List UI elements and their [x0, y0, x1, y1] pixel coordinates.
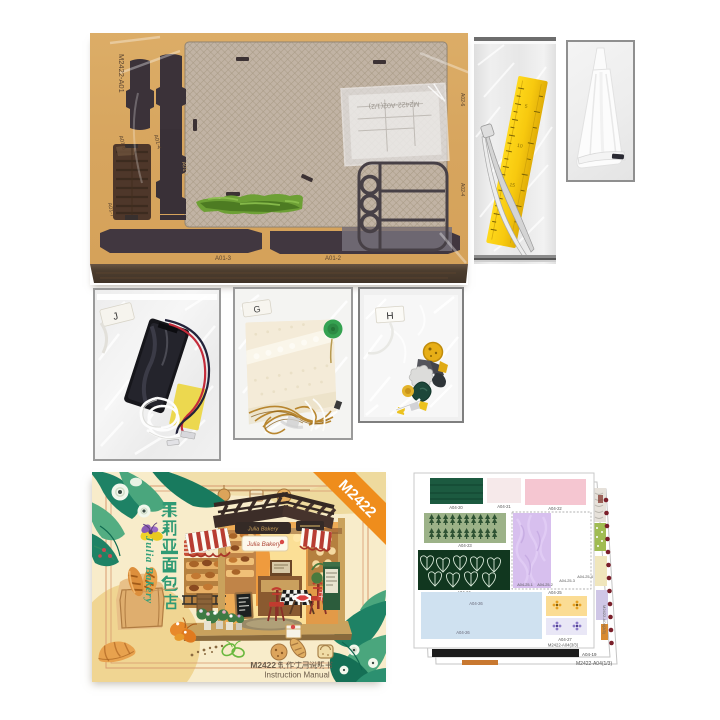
svg-text:A02-4: A02-4: [459, 183, 465, 197]
svg-text:A04-25-2: A04-25-2: [537, 583, 553, 587]
svg-text:A04-25-4: A04-25-4: [577, 575, 593, 579]
svg-text:A04-26: A04-26: [456, 630, 470, 635]
svg-text:A04-22: A04-22: [548, 506, 562, 511]
svg-text:A04-26: A04-26: [469, 601, 483, 606]
svg-text:M2422-A04(1/3): M2422-A04(1/3): [576, 661, 612, 667]
svg-text:A02-6: A02-6: [459, 93, 465, 107]
svg-text:A04-27: A04-27: [558, 637, 572, 642]
svg-text:A04-25-3: A04-25-3: [559, 579, 575, 583]
svg-text:M2422-A04(2/3): M2422-A04(2/3): [602, 605, 607, 635]
svg-text:A04-25-1: A04-25-1: [517, 583, 533, 587]
svg-text:Instruction Manual: Instruction Manual: [264, 671, 330, 680]
svg-text:A01-2: A01-2: [325, 256, 342, 262]
svg-text:A04-19: A04-19: [582, 652, 597, 657]
svg-text:H: H: [386, 311, 394, 322]
svg-text:A01-3: A01-3: [215, 256, 232, 262]
svg-text:A04-20: A04-20: [449, 505, 463, 510]
svg-text:A04-25: A04-25: [548, 590, 562, 595]
svg-text:Julia Bakery: Julia Bakery: [247, 527, 280, 533]
svg-text:M2422-A04(3/3): M2422-A04(3/3): [548, 643, 579, 648]
svg-text:G: G: [253, 304, 261, 315]
svg-text:Julia Bakery: Julia Bakery: [246, 541, 282, 548]
svg-text:A04-21: A04-21: [497, 504, 511, 509]
svg-text:A04-23: A04-23: [458, 543, 472, 548]
svg-text:M2422-A01: M2422-A01: [117, 54, 126, 93]
svg-text:M2422: M2422: [250, 660, 276, 670]
